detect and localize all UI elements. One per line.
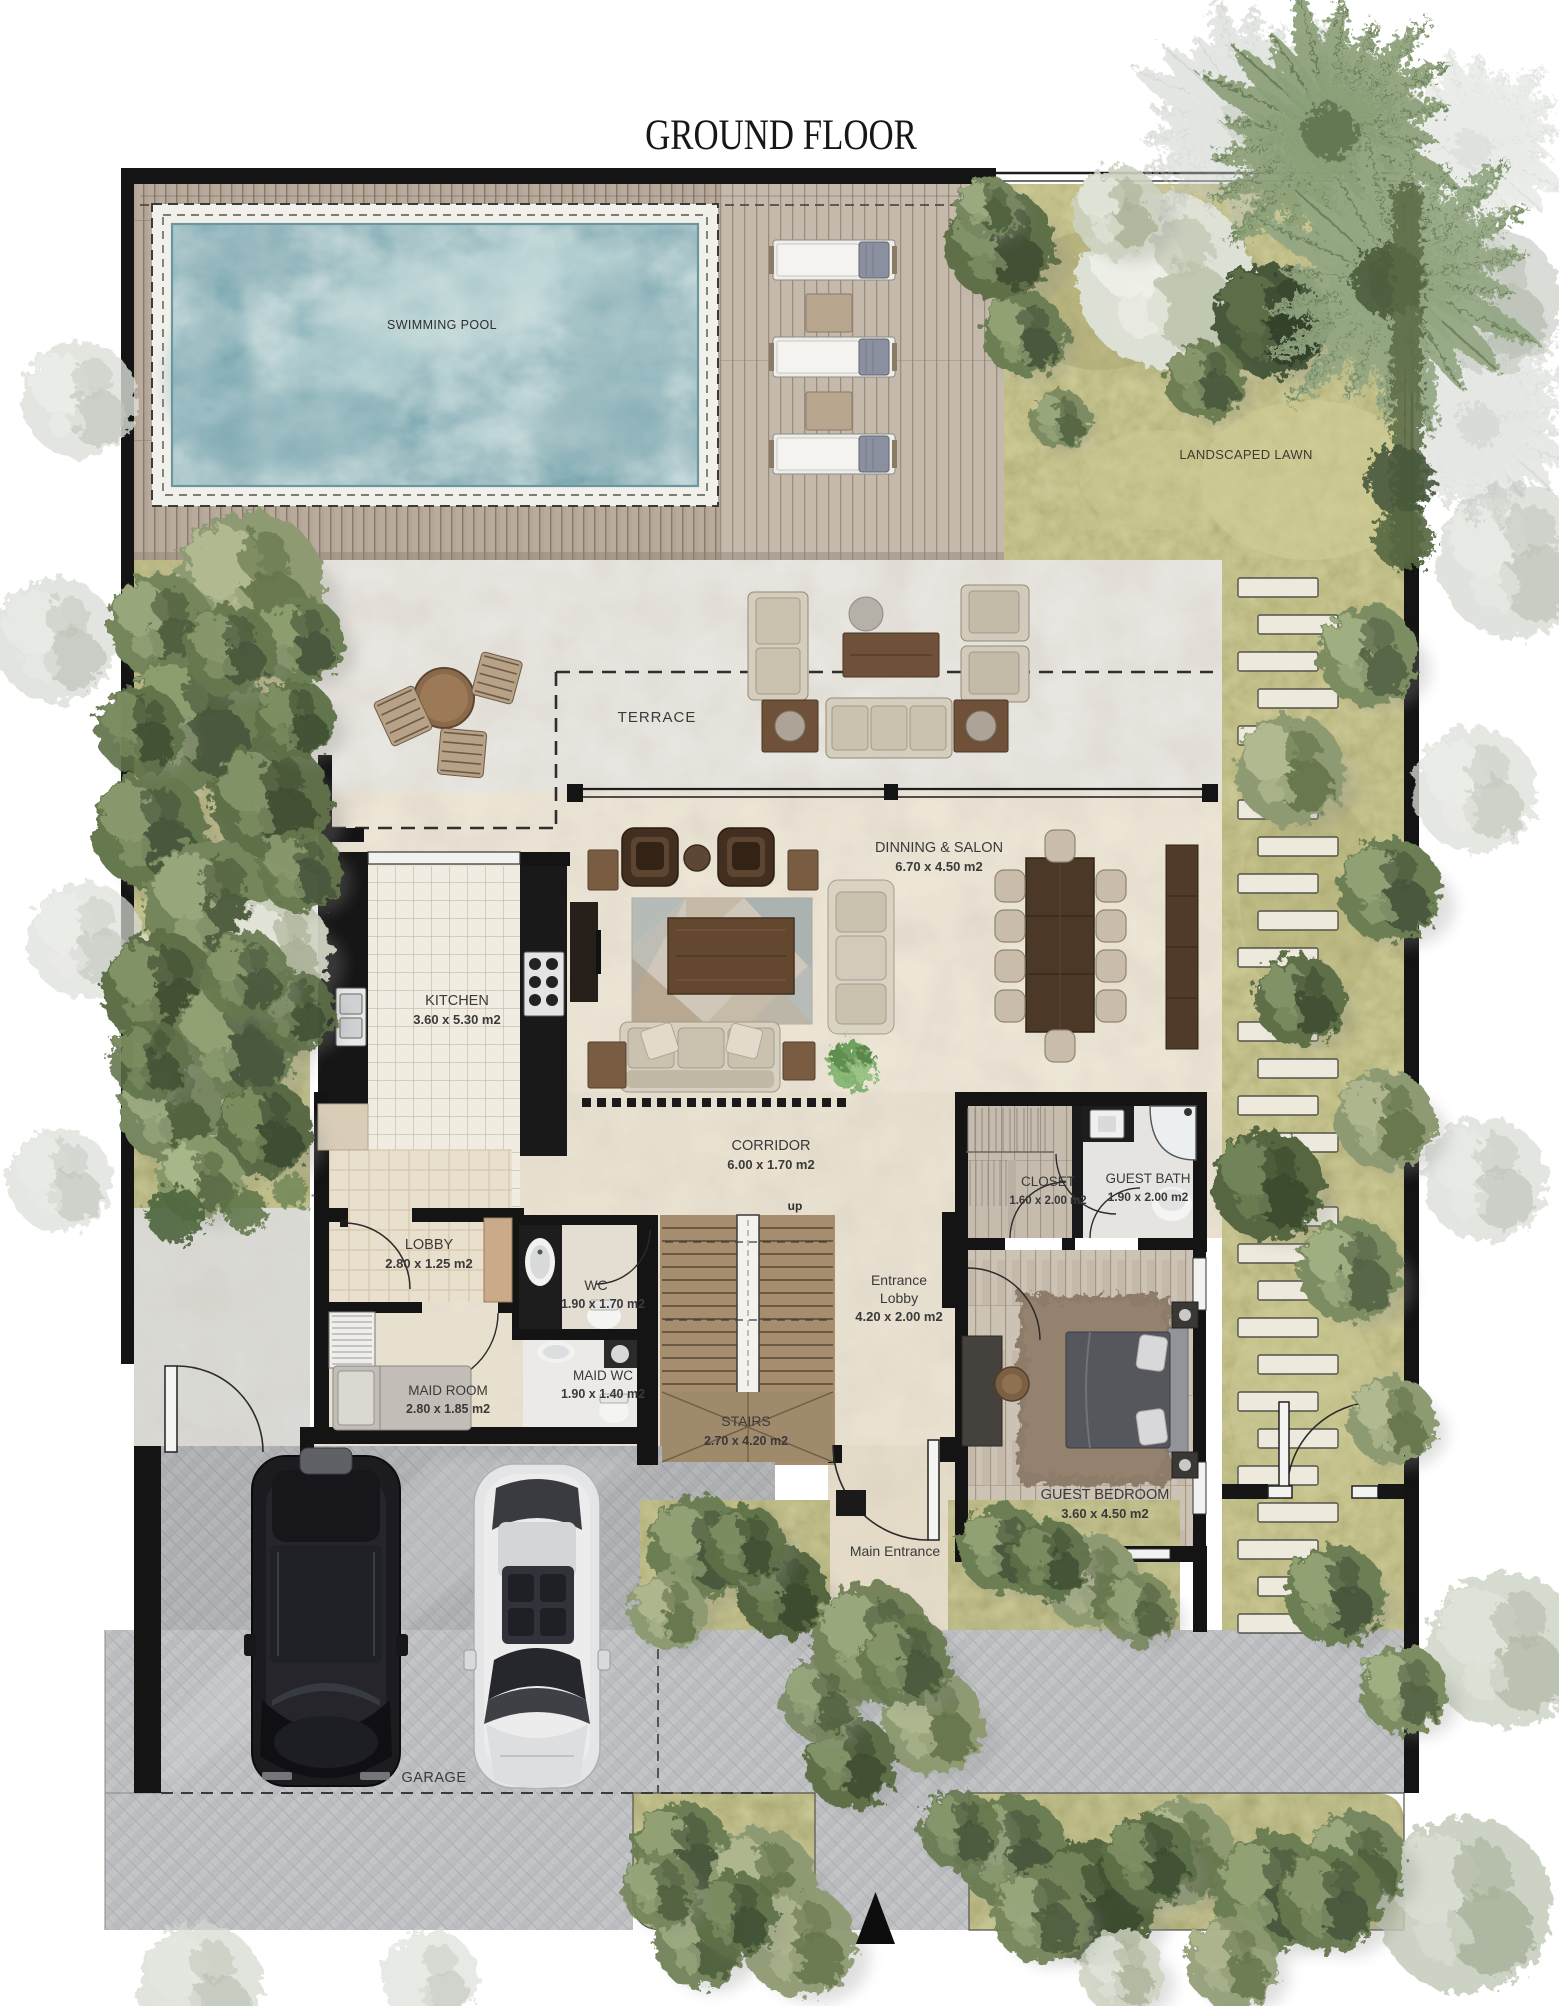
svg-text:up: up (788, 1199, 803, 1213)
svg-text:6.00 x 1.70 m2: 6.00 x 1.70 m2 (727, 1157, 814, 1172)
svg-text:Lobby: Lobby (880, 1290, 918, 1306)
svg-text:1.60 x 2.00 m2: 1.60 x 2.00 m2 (1009, 1195, 1086, 1207)
svg-text:Main Entrance: Main Entrance (850, 1543, 940, 1559)
svg-text:CORRIDOR: CORRIDOR (732, 1138, 811, 1154)
svg-text:MAID WC: MAID WC (573, 1368, 633, 1383)
svg-text:SWIMMING POOL: SWIMMING POOL (387, 318, 497, 332)
svg-text:KITCHEN: KITCHEN (425, 993, 489, 1009)
svg-text:1.90 x 2.00 m2: 1.90 x 2.00 m2 (1108, 1190, 1189, 1204)
svg-text:LANDSCAPED LAWN: LANDSCAPED LAWN (1179, 447, 1312, 462)
svg-text:3.60 x 4.50 m2: 3.60 x 4.50 m2 (1061, 1506, 1148, 1521)
svg-text:Entrance: Entrance (871, 1272, 927, 1288)
svg-text:DINNING & SALON: DINNING & SALON (875, 840, 1003, 856)
svg-text:2.80 x 1.25 m2: 2.80 x 1.25 m2 (385, 1256, 472, 1271)
svg-text:4.20 x 2.00 m2: 4.20 x 2.00 m2 (855, 1309, 942, 1324)
svg-text:1.90 x 1.70 m2: 1.90 x 1.70 m2 (561, 1297, 645, 1311)
svg-text:3.60 x 5.30 m2: 3.60 x 5.30 m2 (413, 1012, 500, 1027)
svg-text:TERRACE: TERRACE (618, 709, 697, 726)
svg-text:6.70 x 4.50 m2: 6.70 x 4.50 m2 (895, 859, 982, 874)
svg-text:CLOSET: CLOSET (1021, 1174, 1075, 1189)
svg-text:MAID ROOM: MAID ROOM (408, 1383, 488, 1398)
svg-text:GROUND FLOOR: GROUND FLOOR (645, 112, 918, 159)
svg-text:STAIRS: STAIRS (721, 1413, 771, 1429)
svg-text:LOBBY: LOBBY (405, 1237, 454, 1253)
svg-text:WC: WC (584, 1277, 607, 1293)
svg-text:1.90 x 1.40 m2: 1.90 x 1.40 m2 (561, 1387, 645, 1401)
svg-text:GARAGE: GARAGE (401, 1770, 466, 1786)
svg-text:GUEST BATH: GUEST BATH (1105, 1171, 1190, 1186)
svg-text:2.70 x 4.20 m2: 2.70 x 4.20 m2 (704, 1434, 788, 1448)
svg-text:2.80 x 1.85 m2: 2.80 x 1.85 m2 (406, 1402, 490, 1416)
svg-text:GUEST BEDROOM: GUEST BEDROOM (1041, 1487, 1170, 1503)
